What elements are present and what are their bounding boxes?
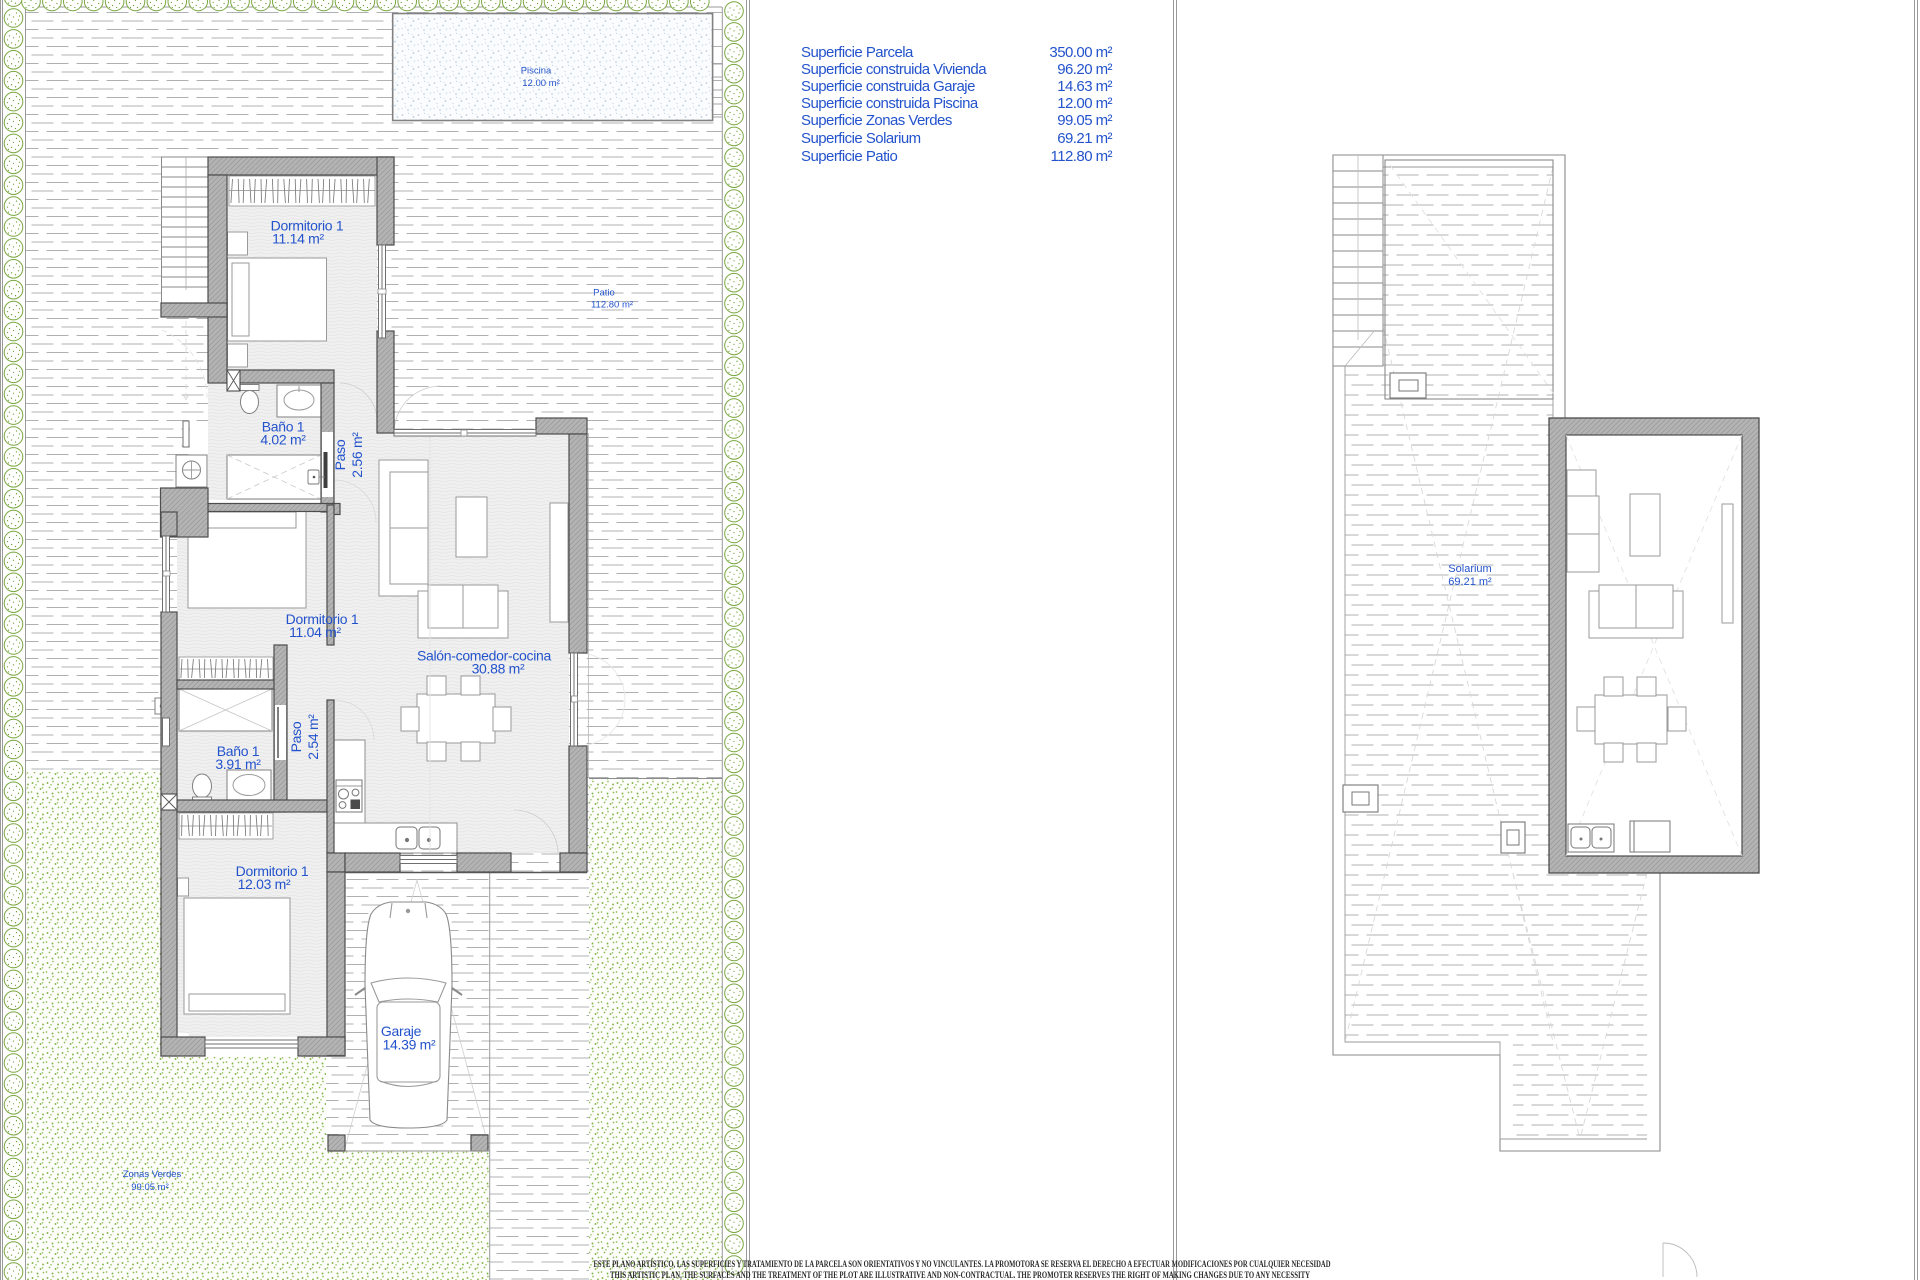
svg-text:69.21 m²: 69.21 m² [1057, 130, 1112, 147]
svg-text:112.80 m²: 112.80 m² [591, 300, 633, 311]
svg-text:Paso: Paso [288, 721, 304, 752]
svg-text:96.20 m²: 96.20 m² [1057, 61, 1112, 78]
svg-text:Patio: Patio [593, 288, 615, 299]
svg-text:11.14 m²: 11.14 m² [272, 231, 324, 247]
svg-text:Solarium: Solarium [1448, 563, 1491, 575]
svg-text:Superficie construida Garaje: Superficie construida Garaje [801, 78, 975, 95]
svg-text:99.05 m²: 99.05 m² [131, 1182, 169, 1193]
svg-text:30.88 m²: 30.88 m² [472, 661, 525, 677]
svg-text:11.04 m²: 11.04 m² [289, 624, 341, 640]
svg-text:Superficie construida Piscina: Superficie construida Piscina [801, 95, 979, 112]
svg-text:ESTE PLANO ARTÍSTICO, LAS SUPE: ESTE PLANO ARTÍSTICO, LAS SUPERFICIES Y … [594, 1259, 1331, 1269]
svg-text:2.56 m²: 2.56 m² [349, 432, 365, 478]
svg-text:14.63 m²: 14.63 m² [1057, 78, 1112, 95]
svg-text:112.80 m²: 112.80 m² [1051, 148, 1113, 165]
svg-text:69.21 m²: 69.21 m² [1448, 576, 1492, 588]
svg-text:Superficie Parcela: Superficie Parcela [801, 44, 914, 61]
svg-text:Piscina: Piscina [521, 66, 552, 77]
svg-text:THIS ARTISTIC PLAN, THE SURFAC: THIS ARTISTIC PLAN, THE SURFACES AND THE… [610, 1270, 1310, 1280]
svg-text:Superficie Zonas Verdes: Superficie Zonas Verdes [801, 112, 952, 129]
svg-text:3.91 m²: 3.91 m² [215, 756, 261, 772]
svg-text:2.54 m²: 2.54 m² [305, 714, 321, 760]
svg-text:Paso: Paso [332, 439, 348, 470]
svg-text:Superficie Solarium: Superficie Solarium [801, 130, 921, 147]
svg-text:Superficie Patio: Superficie Patio [801, 148, 897, 165]
svg-text:Superficie construida Vivienda: Superficie construida Vivienda [801, 61, 987, 78]
svg-text:12.00 m²: 12.00 m² [1057, 95, 1112, 112]
svg-text:12.03 m²: 12.03 m² [238, 876, 291, 892]
svg-text:Zonas Verdes: Zonas Verdes [123, 1169, 182, 1180]
svg-text:14.39 m²: 14.39 m² [383, 1037, 436, 1053]
svg-text:350.00 m²: 350.00 m² [1049, 44, 1112, 61]
svg-text:99.05 m²: 99.05 m² [1057, 112, 1112, 129]
svg-text:4.02 m²: 4.02 m² [260, 432, 306, 448]
svg-text:12.00 m²: 12.00 m² [522, 78, 560, 89]
